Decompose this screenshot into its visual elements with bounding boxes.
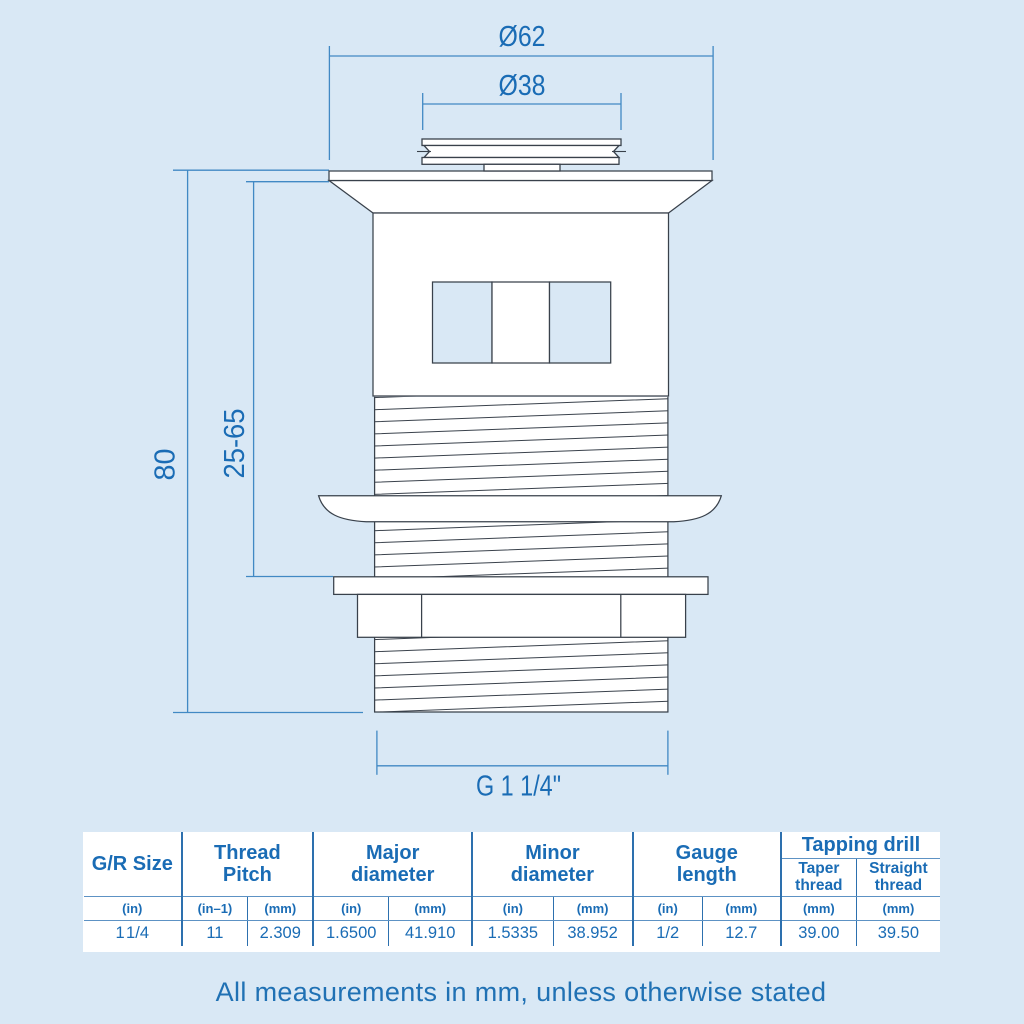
svg-text:80: 80 bbox=[150, 449, 182, 481]
svg-text:25-65: 25-65 bbox=[219, 409, 251, 479]
svg-text:Ø38: Ø38 bbox=[499, 70, 546, 102]
svg-text:G 1 1/4": G 1 1/4" bbox=[476, 771, 561, 803]
svg-text:Ø62: Ø62 bbox=[499, 21, 546, 53]
